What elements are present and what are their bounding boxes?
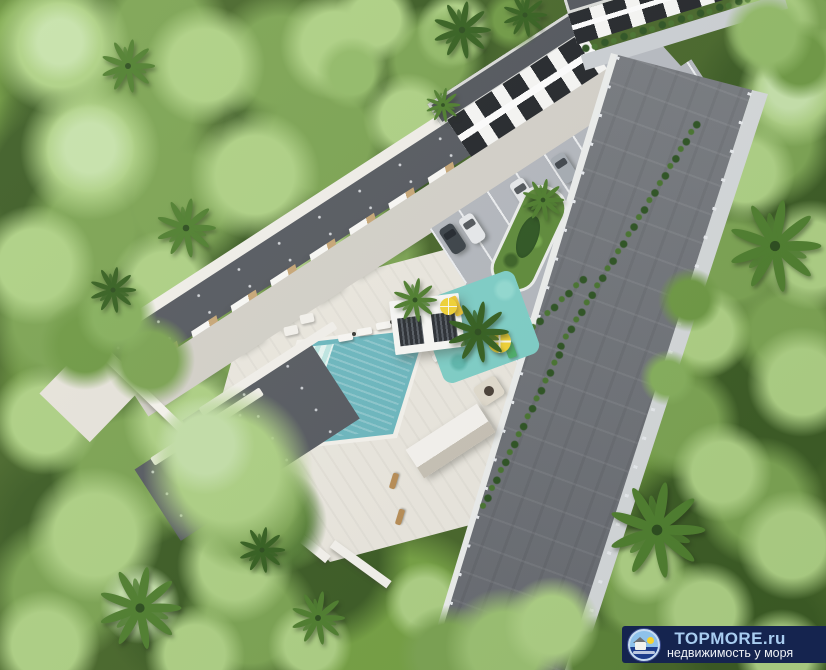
- palm-tree: [89, 266, 137, 314]
- sun-icon: [647, 637, 654, 644]
- palm-tree: [238, 526, 286, 574]
- palm-tree: [155, 197, 217, 259]
- palm-tree: [502, 0, 548, 38]
- palm-tree: [392, 277, 438, 323]
- palm-tree: [290, 590, 346, 646]
- palm-tree: [100, 38, 156, 94]
- watermark-text: TOPMORE.ru недвижимость у моря: [667, 630, 793, 661]
- topmore-logo-icon: [628, 629, 660, 661]
- tagline-text: недвижимость у моря: [667, 647, 793, 660]
- palm-tree: [607, 480, 707, 580]
- watermark-banner: TOPMORE.ru недвижимость у моря: [622, 626, 826, 663]
- brand-text: TOPMORE.ru: [674, 630, 785, 648]
- aerial-render-residential-complex: TOPMORE.ru недвижимость у моря: [0, 0, 826, 670]
- house-icon: [635, 642, 646, 650]
- sea-wave-icon: [633, 651, 655, 654]
- palm-tree: [727, 198, 823, 294]
- palm-tree: [446, 300, 510, 364]
- palm-tree: [521, 178, 565, 222]
- palm-tree: [97, 565, 183, 651]
- palm-tree: [425, 87, 461, 123]
- palm-tree: [432, 0, 492, 60]
